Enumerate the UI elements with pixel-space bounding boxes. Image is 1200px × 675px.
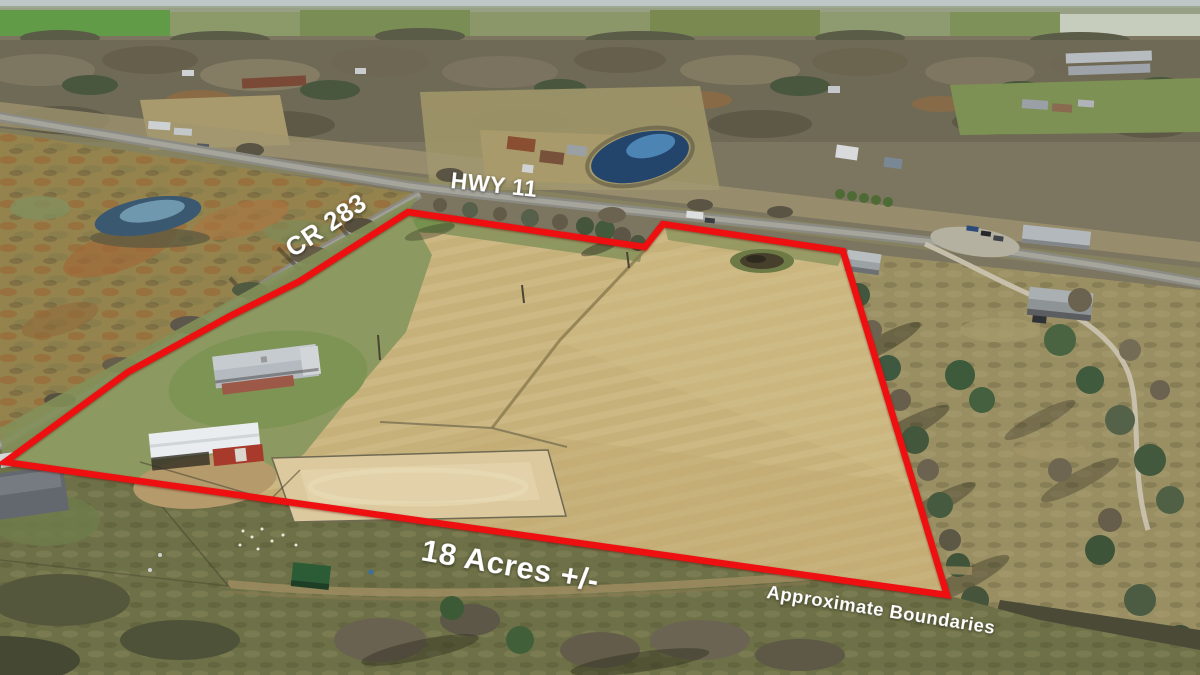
aerial-property-photo: HWY 11 CR 283 18 Acres +/- Approximate B… [0, 0, 1200, 675]
wet-area [730, 249, 794, 273]
riding-arena [272, 450, 566, 522]
blue-barrel [369, 570, 374, 575]
green-shed [291, 562, 331, 590]
